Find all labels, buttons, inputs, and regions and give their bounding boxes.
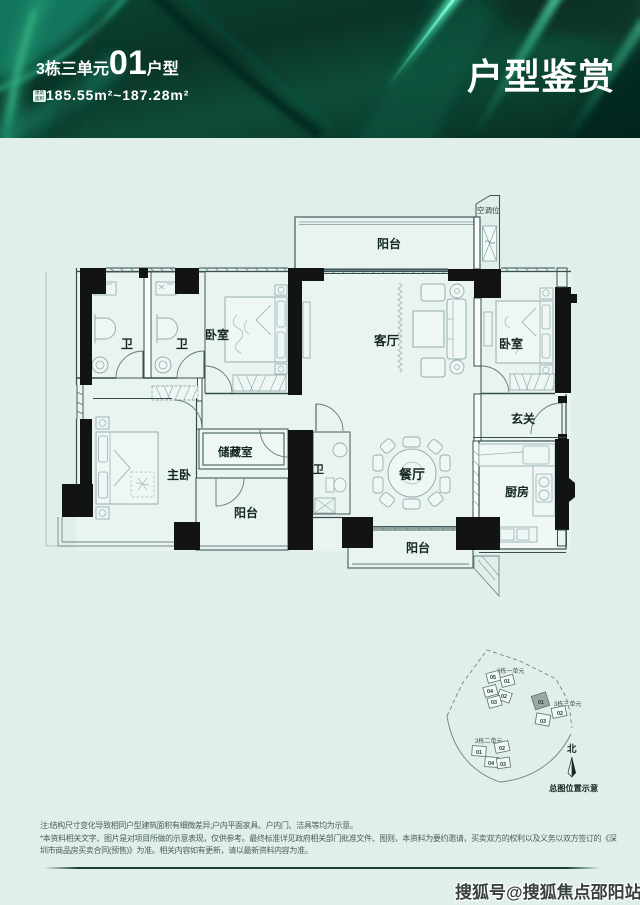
svg-text:餐厅: 餐厅 [398, 467, 425, 482]
svg-text:03: 03 [540, 719, 546, 725]
svg-text:01: 01 [538, 700, 544, 706]
svg-text:玄关: 玄关 [511, 411, 535, 426]
svg-text:03: 03 [491, 700, 497, 706]
svg-text:总图位置示意: 总图位置示意 [549, 783, 598, 793]
svg-text:03: 03 [500, 762, 506, 768]
svg-text:储藏室: 储藏室 [218, 445, 253, 459]
svg-text:卫: 卫 [176, 337, 188, 351]
svg-text:阳台: 阳台 [234, 505, 258, 520]
svg-text:卫: 卫 [121, 337, 133, 351]
svg-text:北: 北 [567, 743, 577, 755]
svg-text:厨房: 厨房 [505, 484, 529, 499]
svg-text:02: 02 [501, 694, 507, 700]
svg-text:卧室: 卧室 [205, 327, 229, 342]
svg-text:卫: 卫 [313, 463, 324, 476]
svg-text:04: 04 [487, 689, 494, 695]
svg-text:05: 05 [490, 675, 496, 681]
svg-text:阳台: 阳台 [377, 236, 401, 251]
svg-text:01: 01 [476, 750, 482, 756]
svg-text:02: 02 [499, 746, 505, 752]
svg-text:01: 01 [504, 679, 510, 685]
svg-text:04: 04 [488, 761, 495, 767]
svg-text:空调位: 空调位 [477, 205, 500, 215]
svg-text:3栋一单元: 3栋一单元 [497, 667, 524, 675]
svg-text:客厅: 客厅 [373, 333, 400, 348]
svg-text:02: 02 [557, 711, 563, 717]
svg-text:主卧: 主卧 [167, 467, 191, 482]
svg-text:卧室: 卧室 [499, 336, 523, 351]
svg-text:阳台: 阳台 [406, 540, 430, 555]
